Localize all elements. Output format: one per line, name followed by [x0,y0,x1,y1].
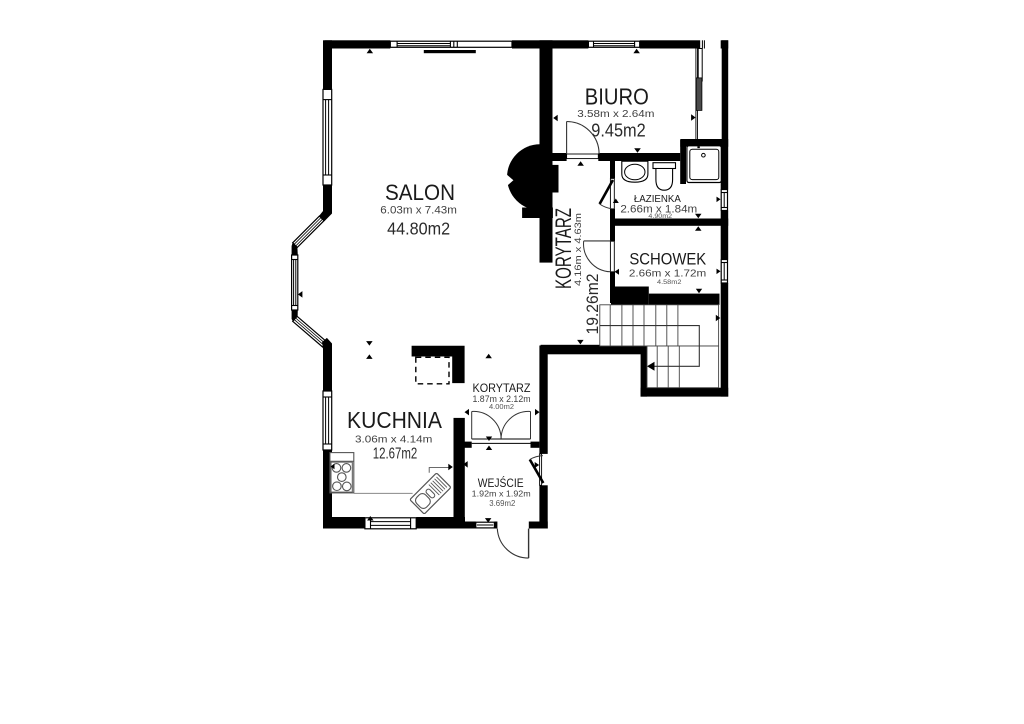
svg-text:4.90m2: 4.90m2 [648,213,672,220]
svg-text:SALON: SALON [385,180,455,205]
svg-text:44.80m2: 44.80m2 [387,218,450,238]
svg-text:6.03m x 7.43m: 6.03m x 7.43m [380,204,457,216]
svg-text:SCHOWEK: SCHOWEK [629,251,706,269]
svg-text:19.26m2: 19.26m2 [583,274,602,335]
svg-text:4.00m2: 4.00m2 [489,402,514,411]
svg-text:BIURO: BIURO [585,84,649,110]
svg-text:3.58m x 2.64m: 3.58m x 2.64m [577,109,654,120]
svg-text:3.06m x 4.14m: 3.06m x 4.14m [355,435,432,446]
svg-text:KUCHNIA: KUCHNIA [347,407,443,433]
svg-text:9.45m2: 9.45m2 [591,120,645,141]
svg-text:12.67m2: 12.67m2 [373,446,418,463]
svg-text:3.69m2: 3.69m2 [489,499,516,508]
svg-text:4.58m2: 4.58m2 [657,279,682,286]
svg-text:1.92m x 1.92m: 1.92m x 1.92m [472,489,531,499]
